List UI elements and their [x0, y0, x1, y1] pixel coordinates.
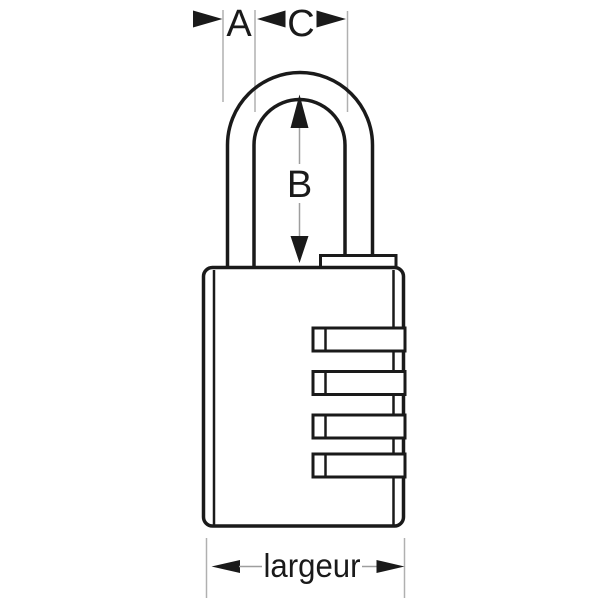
dim-c-label: C [287, 3, 314, 45]
dial-3-outline [313, 415, 405, 438]
dim-c-arrow-right-icon [317, 11, 347, 28]
dial-1-outline [313, 328, 405, 351]
dial-1 [313, 328, 405, 351]
dim-b-arrow-down-icon [291, 236, 309, 263]
dim-b-label: B [287, 164, 312, 206]
dim-largeur-arrow-right-icon [377, 560, 405, 573]
dial-4-outline [313, 454, 405, 477]
dim-c-arrow-left-icon [257, 11, 286, 28]
dimension-largeur: largeur [212, 547, 405, 584]
dial-2 [313, 372, 405, 395]
dial-3 [313, 415, 405, 438]
dim-a-arrow-right-icon [193, 11, 223, 28]
body-outline [204, 268, 404, 527]
padlock-body [204, 268, 404, 527]
dial-4 [313, 454, 405, 477]
dimension-c: C [257, 3, 346, 45]
dim-a-label: A [226, 3, 252, 45]
dial-2-outline [313, 372, 405, 395]
dim-largeur-arrow-left-icon [212, 560, 241, 573]
dim-largeur-label: largeur [264, 547, 361, 584]
dimension-b: B [287, 95, 312, 264]
diagram-canvas: A C B largeur [0, 0, 600, 600]
padlock-dimension-diagram: A C B largeur [0, 0, 600, 600]
